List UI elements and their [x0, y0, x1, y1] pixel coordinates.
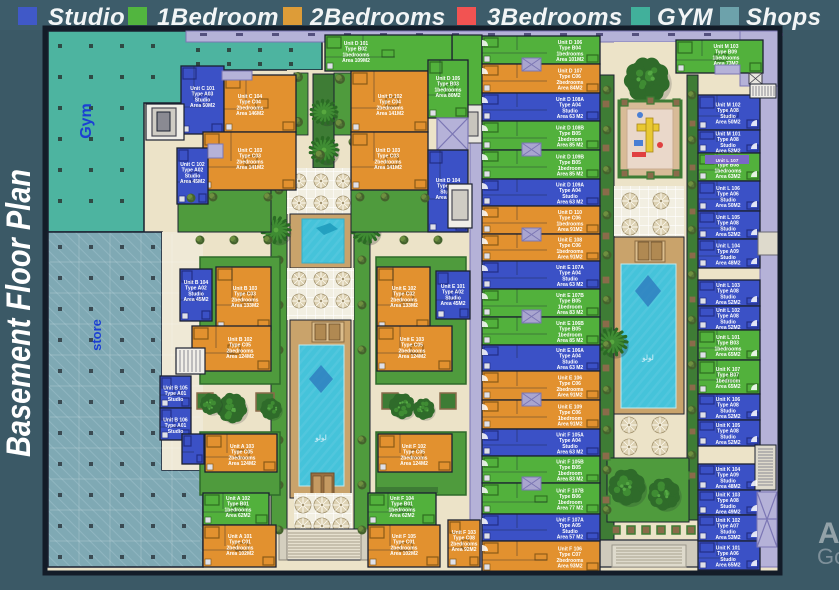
- svg-text:Area 91M2: Area 91M2: [557, 227, 582, 233]
- svg-text:Area 48M2: Area 48M2: [715, 484, 740, 490]
- svg-text:Area 84M2: Area 84M2: [557, 86, 582, 92]
- svg-text:Area 53M2: Area 53M2: [715, 535, 740, 541]
- svg-text:Area 45M2: Area 45M2: [180, 179, 205, 185]
- svg-text:Area 141M2: Area 141M2: [236, 165, 264, 171]
- svg-text:Area 50M2: Area 50M2: [190, 103, 215, 109]
- svg-text:Area 133M2: Area 133M2: [231, 303, 259, 309]
- svg-text:Area 92M2: Area 92M2: [451, 547, 476, 553]
- svg-text:Gym: Gym: [78, 103, 95, 139]
- svg-text:Studio: Studio: [168, 397, 184, 403]
- svg-text:Area 83 M2: Area 83 M2: [557, 477, 584, 483]
- svg-text:Area 83 M2: Area 83 M2: [557, 310, 584, 316]
- svg-text:Studio: Studio: [168, 429, 184, 435]
- svg-text:Area 124M2: Area 124M2: [226, 354, 254, 360]
- svg-text:Area 85 M2: Area 85 M2: [557, 143, 584, 149]
- svg-text:Area 124M2: Area 124M2: [400, 461, 428, 467]
- svg-text:Area 52M2: Area 52M2: [715, 232, 740, 238]
- svg-text:Area 63 M2: Area 63 M2: [557, 365, 584, 371]
- svg-text:Area 85 M2: Area 85 M2: [557, 338, 584, 344]
- svg-text:Area 124M2: Area 124M2: [228, 461, 256, 467]
- svg-text:Area 48M2: Area 48M2: [715, 261, 740, 267]
- svg-text:Area 102M2: Area 102M2: [390, 551, 418, 557]
- svg-text:Go: Go: [817, 544, 839, 569]
- svg-text:لولو: لولو: [314, 434, 327, 442]
- svg-text:Area 109M2: Area 109M2: [342, 58, 370, 64]
- svg-text:Unit L 107: Unit L 107: [716, 158, 739, 164]
- svg-text:Area 80M2: Area 80M2: [435, 93, 460, 99]
- svg-text:لولو: لولو: [641, 354, 654, 362]
- svg-text:Area 63M2: Area 63M2: [715, 174, 740, 180]
- svg-text:Area 65M2: Area 65M2: [715, 384, 740, 390]
- svg-text:Area 141M2: Area 141M2: [376, 111, 404, 117]
- svg-text:Area 52M2: Area 52M2: [715, 300, 740, 306]
- svg-text:Area 77 M2: Area 77 M2: [557, 506, 584, 512]
- svg-text:Area 63 M2: Area 63 M2: [557, 114, 584, 120]
- svg-text:Area 50M2: Area 50M2: [715, 120, 740, 126]
- svg-text:Area 93M2: Area 93M2: [557, 564, 582, 570]
- svg-text:Area 91M2: Area 91M2: [557, 255, 582, 261]
- svg-text:Area 63 M2: Area 63 M2: [557, 282, 584, 288]
- svg-text:Area 63 M2: Area 63 M2: [557, 450, 584, 456]
- svg-text:store: store: [89, 319, 104, 351]
- svg-text:Area 101M2: Area 101M2: [556, 57, 584, 63]
- svg-text:Area 133M2: Area 133M2: [390, 303, 418, 309]
- svg-text:Area 63 M2: Area 63 M2: [557, 200, 584, 206]
- svg-text:Area 50M2: Area 50M2: [715, 203, 740, 209]
- svg-text:Area 91M2: Area 91M2: [557, 393, 582, 399]
- svg-text:Area 52M2: Area 52M2: [715, 440, 740, 446]
- svg-text:Area 57 M2: Area 57 M2: [557, 535, 584, 541]
- svg-text:Area 45M2: Area 45M2: [440, 301, 465, 307]
- svg-text:Area 65M2: Area 65M2: [715, 563, 740, 569]
- svg-text:Area 45M2: Area 45M2: [183, 297, 208, 303]
- svg-text:Area 85 M2: Area 85 M2: [557, 172, 584, 178]
- svg-text:Area 124M2: Area 124M2: [398, 354, 426, 360]
- svg-text:Area 62M2: Area 62M2: [225, 513, 250, 519]
- svg-text:Area 141M2: Area 141M2: [374, 165, 402, 171]
- svg-text:Area 62M2: Area 62M2: [389, 513, 414, 519]
- svg-text:Area 65M2: Area 65M2: [715, 352, 740, 358]
- svg-text:Area 102M2: Area 102M2: [226, 551, 254, 557]
- svg-text:Basement Floor Plan: Basement Floor Plan: [0, 169, 38, 457]
- svg-text:Area 91M2: Area 91M2: [557, 422, 582, 428]
- svg-text:Area 52M2: Area 52M2: [715, 414, 740, 420]
- svg-text:Area 146M2: Area 146M2: [236, 111, 264, 117]
